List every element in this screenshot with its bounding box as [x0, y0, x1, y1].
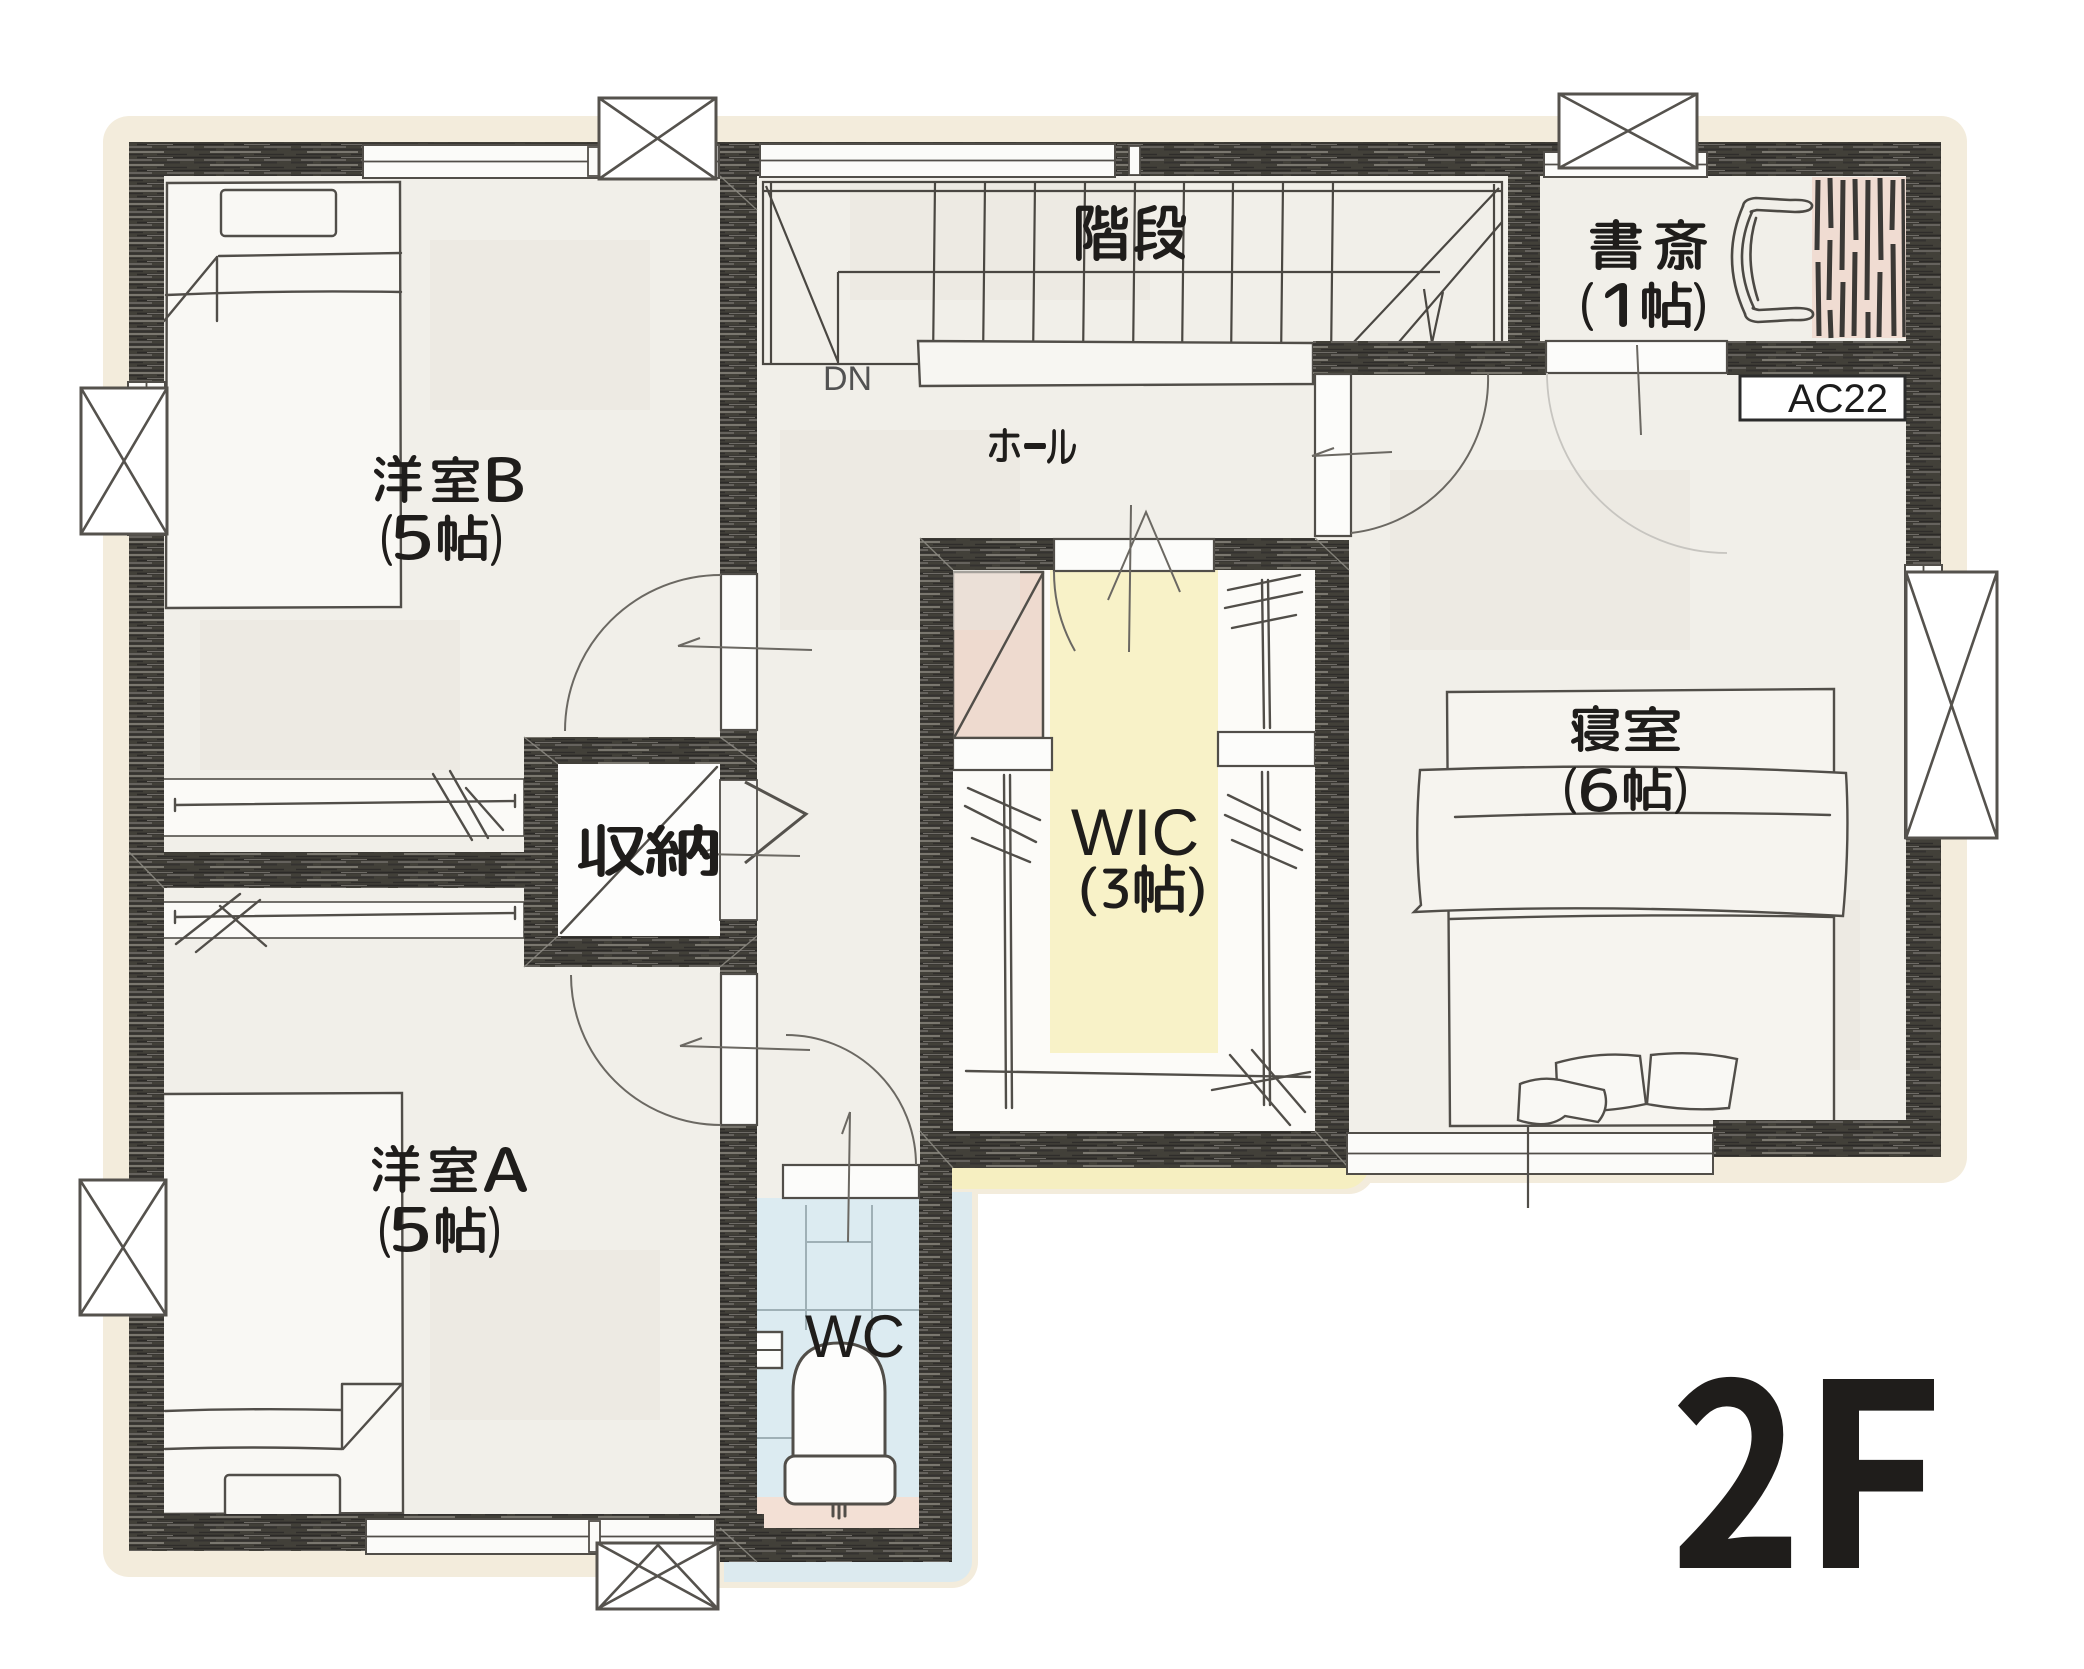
svg-text:WIC: WIC: [1071, 795, 1199, 869]
svg-text:DN: DN: [823, 360, 872, 398]
svg-text:WC: WC: [805, 1303, 905, 1370]
svg-text:AC22: AC22: [1788, 377, 1888, 421]
